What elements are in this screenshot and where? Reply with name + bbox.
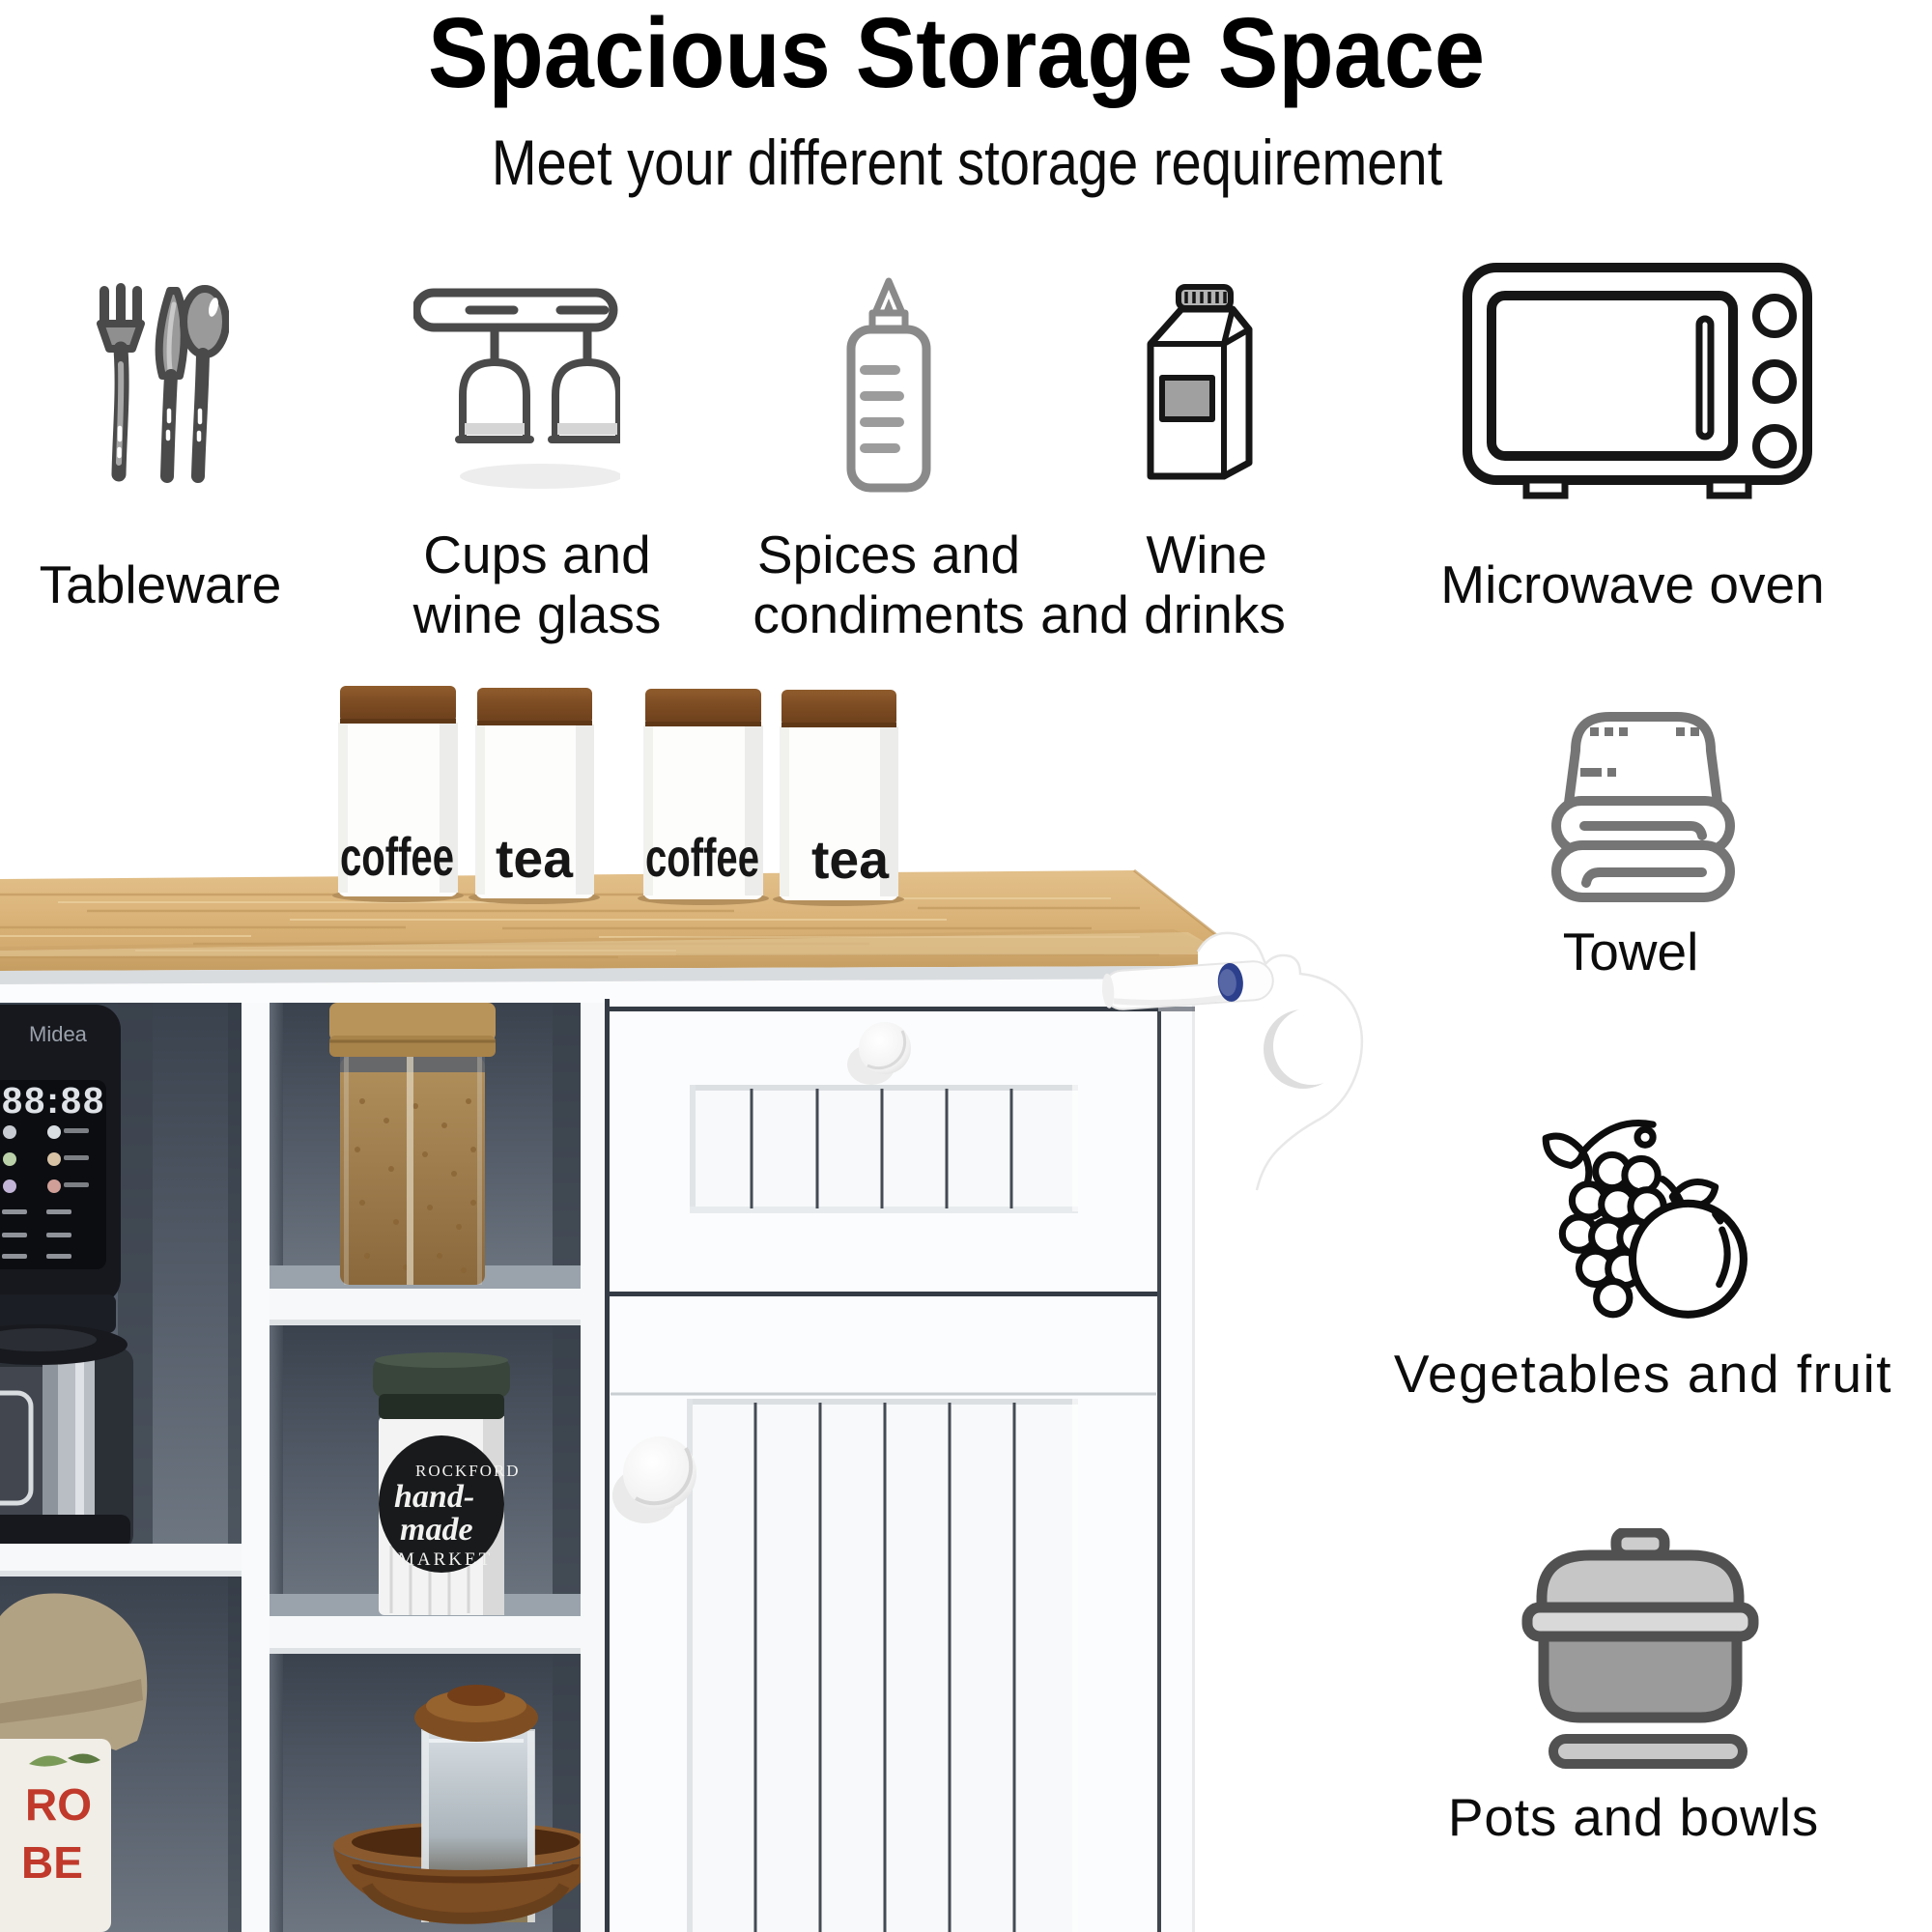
svg-text:Midea: Midea — [29, 1022, 88, 1046]
svg-text:made: made — [400, 1512, 473, 1548]
svg-text:88:88: 88:88 — [2, 1081, 105, 1122]
svg-text:hand-: hand- — [394, 1479, 474, 1515]
svg-text:RO: RO — [25, 1779, 92, 1830]
svg-text:MARKET: MARKET — [398, 1549, 493, 1570]
svg-text:tea: tea — [496, 828, 574, 889]
svg-text:ROCKFORD: ROCKFORD — [415, 1462, 521, 1480]
svg-text:BE: BE — [21, 1837, 83, 1888]
svg-text:coffee: coffee — [645, 827, 759, 888]
svg-text:tea: tea — [811, 829, 890, 890]
svg-text:coffee: coffee — [340, 826, 454, 887]
